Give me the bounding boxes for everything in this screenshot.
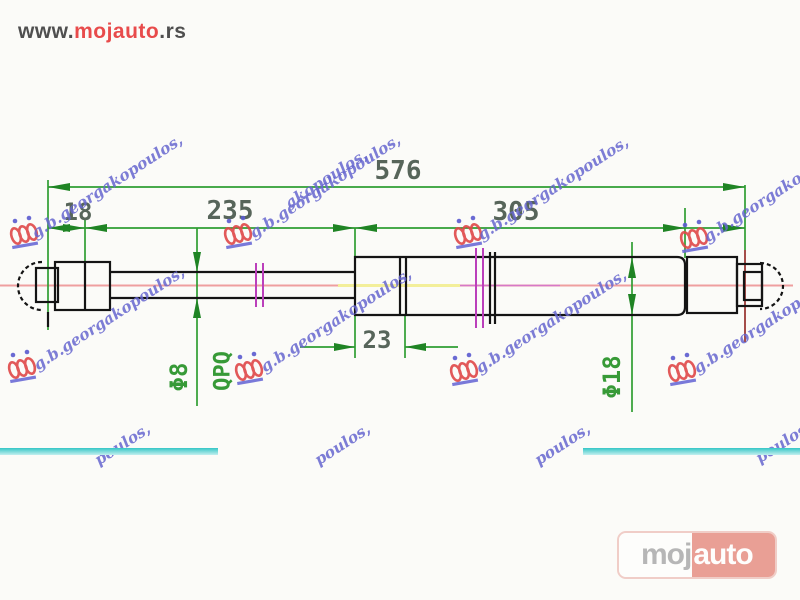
badge-auto-text: auto <box>692 540 752 570</box>
dimension-arrows <box>48 183 745 351</box>
cyan-highlight-band <box>583 448 800 455</box>
badge-left-section: moj <box>619 533 692 577</box>
badge-right-section: auto <box>692 533 775 577</box>
dim-surface-treatment: QPQ <box>211 351 236 391</box>
dim-body-diameter: Φ18 <box>598 355 626 398</box>
dim-total-length: 576 <box>375 156 422 186</box>
product-image: www.mojauto.rs <box>0 0 800 600</box>
mojauto-logo-badge: moj auto <box>617 531 777 579</box>
cyan-highlight-band <box>0 448 218 455</box>
dim-rod-diameter: Φ8 <box>165 363 193 392</box>
badge-moj-text: moj <box>641 540 692 570</box>
dim-piston-offset: 23 <box>363 326 392 354</box>
